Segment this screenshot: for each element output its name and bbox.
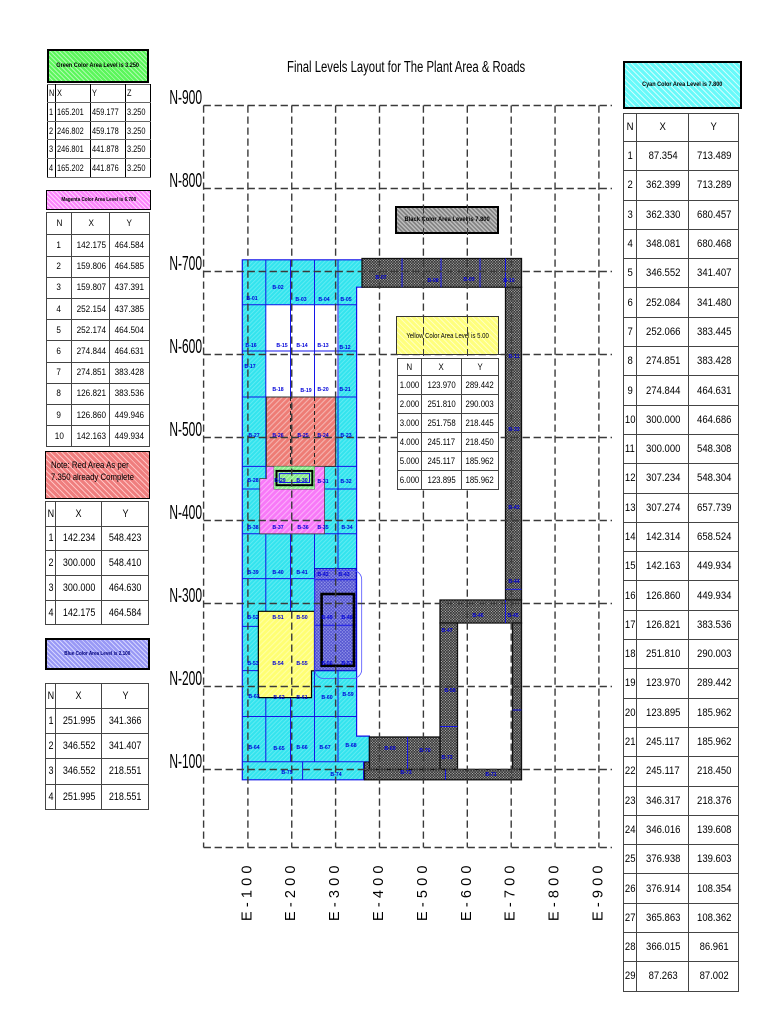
svg-text:B-63: B-63 bbox=[248, 694, 259, 700]
svg-text:B-75: B-75 bbox=[281, 770, 292, 776]
svg-text:E-200: E-200 bbox=[283, 861, 299, 921]
svg-text:B-23: B-23 bbox=[340, 433, 351, 439]
svg-text:B-60: B-60 bbox=[321, 695, 332, 701]
svg-text:B-15: B-15 bbox=[276, 343, 287, 349]
svg-text:B-21: B-21 bbox=[339, 387, 350, 393]
svg-text:N-900: N-900 bbox=[169, 87, 202, 109]
svg-text:B-34: B-34 bbox=[341, 525, 352, 531]
svg-text:E-100: E-100 bbox=[239, 861, 255, 921]
svg-text:B-42: B-42 bbox=[317, 572, 328, 578]
svg-text:B-64: B-64 bbox=[248, 745, 259, 751]
svg-text:B-38: B-38 bbox=[247, 525, 258, 531]
svg-text:B-74: B-74 bbox=[330, 772, 341, 778]
svg-text:B-45: B-45 bbox=[507, 613, 518, 619]
svg-text:B-08: B-08 bbox=[427, 278, 438, 284]
svg-text:B-53: B-53 bbox=[247, 661, 258, 667]
svg-text:B-47: B-47 bbox=[441, 628, 452, 634]
svg-text:E-600: E-600 bbox=[459, 861, 475, 921]
svg-text:B-66: B-66 bbox=[296, 745, 307, 751]
svg-text:N-300: N-300 bbox=[169, 585, 202, 607]
svg-text:B-55: B-55 bbox=[296, 661, 307, 667]
svg-text:B-25: B-25 bbox=[297, 433, 308, 439]
svg-text:B-05: B-05 bbox=[340, 297, 351, 303]
svg-text:B-04: B-04 bbox=[318, 297, 329, 303]
svg-text:B-61: B-61 bbox=[296, 695, 307, 701]
svg-text:B-35: B-35 bbox=[317, 525, 328, 531]
svg-text:B-10: B-10 bbox=[503, 278, 514, 284]
svg-text:B-68: B-68 bbox=[345, 743, 356, 749]
svg-text:B-51: B-51 bbox=[272, 615, 283, 621]
svg-text:B-52: B-52 bbox=[247, 615, 258, 621]
svg-text:B-26: B-26 bbox=[272, 433, 283, 439]
svg-text:B-67: B-67 bbox=[319, 745, 330, 751]
svg-text:B-73: B-73 bbox=[400, 770, 411, 776]
svg-text:B-12: B-12 bbox=[339, 345, 350, 351]
svg-text:E-900: E-900 bbox=[590, 861, 606, 921]
svg-text:B-16: B-16 bbox=[245, 343, 256, 349]
svg-text:E-400: E-400 bbox=[371, 861, 387, 921]
svg-text:B-40: B-40 bbox=[272, 570, 283, 576]
svg-text:B-44: B-44 bbox=[508, 579, 519, 585]
svg-text:B-43: B-43 bbox=[338, 572, 349, 578]
svg-text:B-72: B-72 bbox=[441, 755, 452, 761]
svg-text:B-39: B-39 bbox=[247, 570, 258, 576]
svg-text:B-50: B-50 bbox=[296, 615, 307, 621]
svg-text:N-700: N-700 bbox=[169, 253, 202, 275]
svg-text:B-18: B-18 bbox=[272, 387, 283, 393]
svg-text:B-32: B-32 bbox=[340, 479, 351, 485]
svg-text:B-65: B-65 bbox=[273, 746, 284, 752]
svg-text:B-43: B-43 bbox=[508, 505, 519, 511]
svg-text:B-09: B-09 bbox=[463, 277, 474, 283]
svg-text:B-29: B-29 bbox=[274, 478, 285, 484]
svg-text:B-54: B-54 bbox=[272, 661, 283, 667]
svg-text:B-02: B-02 bbox=[272, 285, 283, 291]
svg-text:B-36: B-36 bbox=[297, 525, 308, 531]
svg-text:B-27: B-27 bbox=[248, 433, 259, 439]
svg-text:B-69: B-69 bbox=[384, 746, 395, 752]
svg-text:B-71: B-71 bbox=[485, 772, 496, 778]
svg-text:B-14: B-14 bbox=[296, 343, 307, 349]
svg-text:B-30: B-30 bbox=[296, 478, 307, 484]
svg-text:B-19: B-19 bbox=[300, 388, 311, 394]
svg-text:B-07: B-07 bbox=[375, 275, 386, 281]
svg-text:B-46: B-46 bbox=[472, 613, 483, 619]
svg-text:B-20: B-20 bbox=[317, 387, 328, 393]
svg-text:N-400: N-400 bbox=[169, 502, 202, 524]
svg-text:B-48: B-48 bbox=[341, 615, 352, 621]
svg-text:B-56: B-56 bbox=[321, 661, 332, 667]
svg-text:E-700: E-700 bbox=[503, 861, 519, 921]
svg-text:B-70: B-70 bbox=[419, 748, 430, 754]
svg-text:B-11: B-11 bbox=[509, 354, 520, 360]
svg-text:B-37: B-37 bbox=[272, 525, 283, 531]
svg-text:B-13: B-13 bbox=[317, 343, 328, 349]
svg-text:B-31: B-31 bbox=[317, 479, 328, 485]
svg-text:N-100: N-100 bbox=[169, 751, 202, 773]
svg-text:B-58: B-58 bbox=[444, 688, 455, 694]
svg-text:B-41: B-41 bbox=[296, 570, 307, 576]
svg-text:E-300: E-300 bbox=[327, 861, 343, 921]
svg-text:N-200: N-200 bbox=[169, 668, 202, 690]
svg-text:N-800: N-800 bbox=[169, 170, 202, 192]
svg-text:B-24: B-24 bbox=[317, 433, 328, 439]
svg-text:E-800: E-800 bbox=[547, 861, 563, 921]
svg-text:B-59: B-59 bbox=[342, 692, 353, 698]
svg-text:B-01: B-01 bbox=[246, 296, 257, 302]
svg-text:B-33: B-33 bbox=[508, 427, 519, 433]
svg-text:B-49: B-49 bbox=[321, 615, 332, 621]
svg-text:N-500: N-500 bbox=[169, 419, 202, 441]
svg-text:B-57: B-57 bbox=[341, 661, 352, 667]
svg-text:B-17: B-17 bbox=[244, 364, 255, 370]
svg-text:N-600: N-600 bbox=[169, 336, 202, 358]
svg-text:B-28: B-28 bbox=[247, 478, 258, 484]
svg-text:B-03: B-03 bbox=[295, 297, 306, 303]
svg-text:E-500: E-500 bbox=[415, 861, 431, 921]
svg-text:B-62: B-62 bbox=[273, 695, 284, 701]
